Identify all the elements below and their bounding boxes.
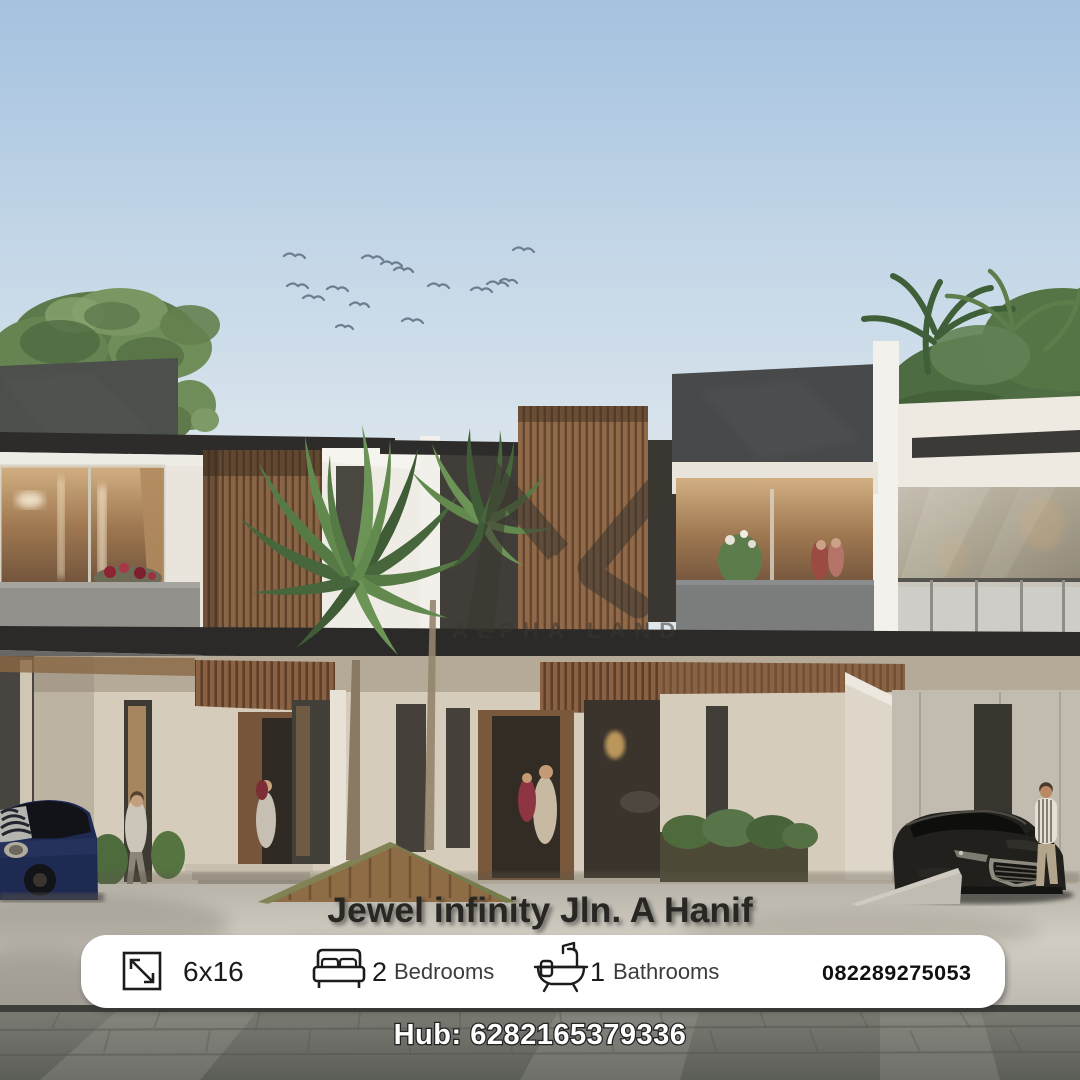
svg-text:Bathrooms: Bathrooms [613, 959, 719, 984]
svg-text:1: 1 [590, 957, 605, 987]
svg-text:082289275053: 082289275053 [822, 961, 972, 985]
svg-text:2: 2 [372, 957, 387, 987]
svg-text:Hub: 6282165379336: Hub: 6282165379336 [394, 1019, 687, 1051]
svg-text:ALPHA LAND: ALPHA LAND [452, 618, 684, 643]
svg-text:Bedrooms: Bedrooms [394, 959, 494, 984]
svg-text:6x16: 6x16 [183, 956, 244, 987]
svg-text:Jewel infinity Jln. A Hanif: Jewel infinity Jln. A Hanif [327, 890, 753, 930]
